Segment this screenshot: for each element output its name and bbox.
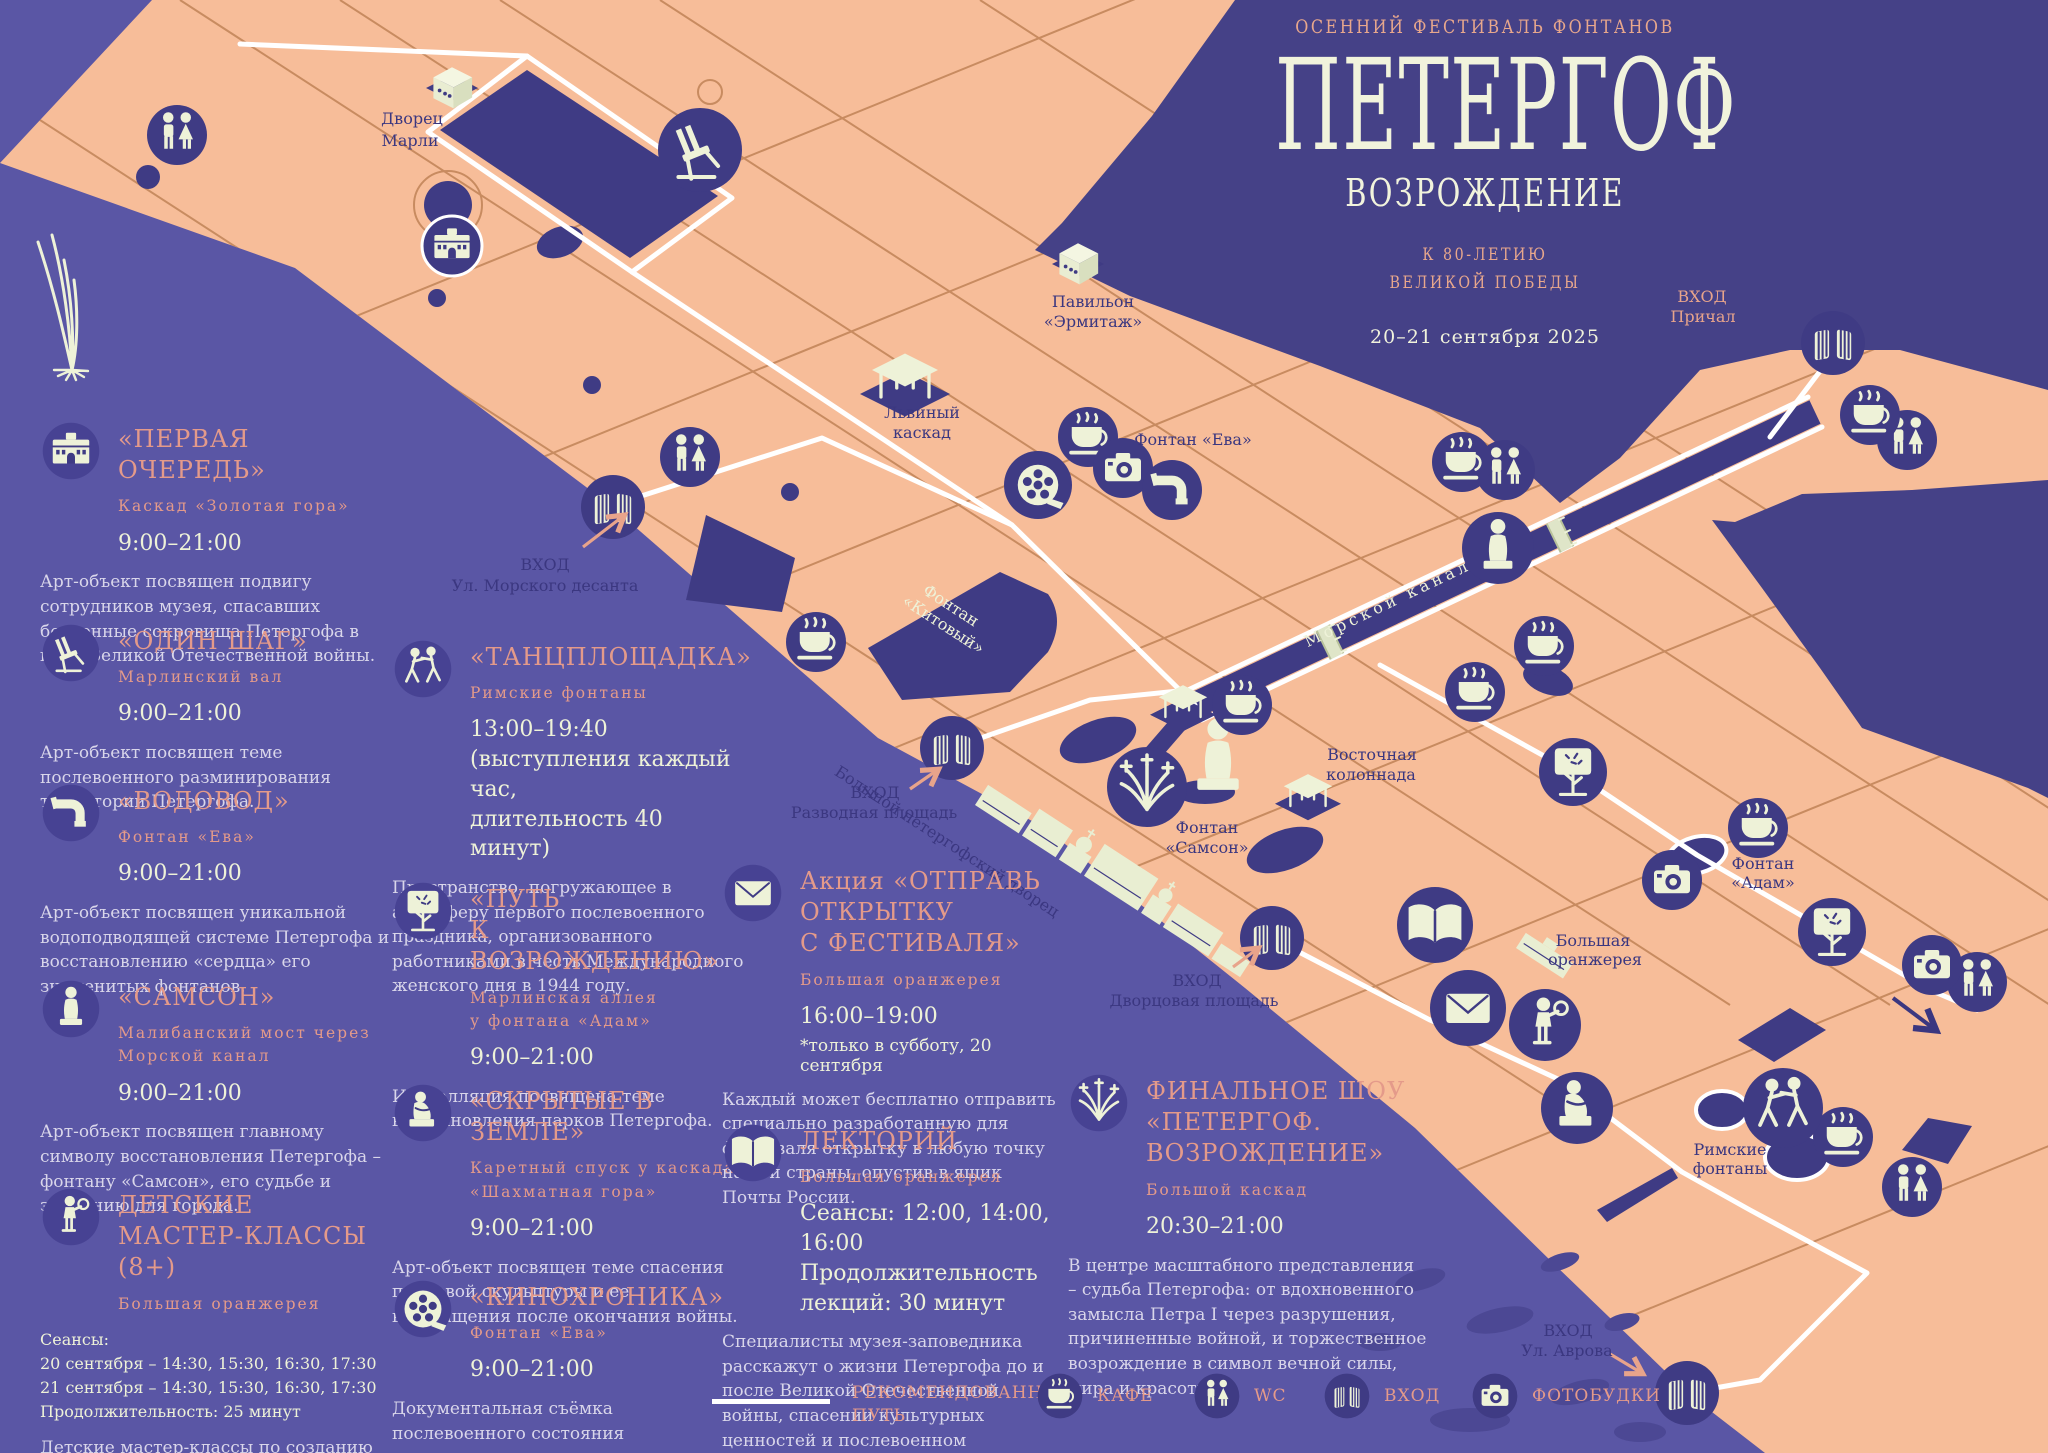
svg-text:Фонтан: Фонтан (1176, 818, 1239, 837)
svg-text:Львиный: Львиный (884, 403, 960, 422)
svg-text:ВХОД: ВХОД (850, 783, 899, 802)
svg-text:Дворцовая площадь: Дворцовая площадь (1110, 991, 1279, 1010)
event-card: ФИНАЛЬНОЕ ШОУ «ПЕТЕРГОФ. ВОЗРОЖДЕНИЕ» Бо… (1068, 1072, 1428, 1401)
event-location: Большая оранжерея (118, 1293, 400, 1316)
event-location: Римские фонтаны (470, 682, 744, 705)
event-note: *только в субботу, 20 сентября (800, 1036, 1058, 1076)
event-card: ДЕТСКИЕ МАСТЕР-КЛАССЫ (8+) Большая оранж… (40, 1186, 400, 1453)
svg-text:«Адам»: «Адам» (1731, 873, 1795, 892)
event-title: «ПЕРВАЯ ОЧЕРЕДЬ» (118, 424, 392, 486)
entrance-gate-icon (1322, 1371, 1372, 1421)
event-description: Документальная съёмка послевоенного сост… (392, 1397, 744, 1453)
svg-text:оранжерея: оранжерея (1548, 950, 1642, 969)
seated-statue-icon (392, 1082, 454, 1144)
svg-text:Фонтан: Фонтан (1732, 854, 1795, 873)
envelope-icon (722, 862, 784, 924)
svg-text:«Самсон»: «Самсон» (1165, 838, 1248, 857)
palace-icon (40, 420, 102, 482)
svg-text:Римские: Римские (1694, 1140, 1767, 1159)
event-title: «ТАНЦПЛОЩАДКА» (470, 642, 744, 673)
svg-text:колоннада: колоннада (1326, 765, 1416, 784)
event-title: Акция «ОТПРАВЬ ОТКРЫТКУ С ФЕСТИВАЛЯ» (800, 866, 1058, 960)
route-line-sample (712, 1399, 830, 1404)
event-location: Малибанский мост через Морской канал (118, 1022, 371, 1069)
event-time: Сеансы: 12:00, 14:00, 16:00 Продолжитель… (800, 1199, 1062, 1318)
festival-map-poster: Дворец Марли Павильон «Эрмитаж» Львиный … (0, 0, 2048, 1453)
event-title: «ОДИН ШАГ» (118, 626, 308, 657)
event-time: 9:00–21:00 (470, 1214, 744, 1244)
legend-wc: WC (1192, 1371, 1286, 1421)
svg-text:Ул. Морского десанта: Ул. Морского десанта (452, 576, 639, 595)
svg-text:Ул. Аврова: Ул. Аврова (1521, 1341, 1613, 1360)
event-title: «КИНОХРОНИКА» (470, 1282, 724, 1313)
film-reel-icon (392, 1278, 454, 1340)
svg-text:Восточная: Восточная (1327, 745, 1417, 764)
svg-text:Большая: Большая (1556, 931, 1631, 950)
dedication: К 80-ЛЕТИЮ ВЕЛИКОЙ ПОБЕДЫ (1191, 241, 1779, 299)
svg-text:Фонтан «Ева»: Фонтан «Ева» (1134, 430, 1252, 449)
svg-text:ВХОД: ВХОД (1172, 971, 1221, 990)
svg-text:ВХОД: ВХОД (520, 555, 569, 574)
photo-booth-icon (1470, 1371, 1520, 1421)
event-title: «ПУТЬ К ВОЗРОЖДЕНИЮ» (470, 884, 744, 978)
legend-wc-label: WC (1254, 1386, 1286, 1406)
event-time: 9:00–21:00 (470, 1043, 744, 1073)
festival-dates: 20–21 сентября 2025 (1135, 326, 1835, 348)
legend-cafe-label: КАФЕ (1097, 1386, 1154, 1406)
svg-text:Дворец: Дворец (381, 109, 443, 128)
event-time: 13:00–19:40 (выступления каждый час, дли… (470, 715, 744, 863)
child-icon (40, 1186, 102, 1248)
event-location: Марлинская аллея у фонтана «Адам» (470, 987, 744, 1034)
event-title: «ВОДОВОД» (118, 786, 290, 817)
envelope-icon (1446, 994, 1490, 1023)
event-description: Детские мастер-классы по созданию фигуро… (40, 1436, 400, 1453)
event-location: Каретный спуск у каскада «Шахматная гора… (470, 1157, 744, 1204)
open-book-icon (722, 1122, 784, 1184)
event-location: Большой каскад (1146, 1179, 1405, 1202)
legend-photobooth-label: ФОТОБУДКИ (1532, 1386, 1661, 1406)
event-title: ДЕТСКИЕ МАСТЕР-КЛАССЫ (8+) (118, 1190, 400, 1284)
svg-text:Разводная площадь: Разводная площадь (791, 803, 958, 822)
poster-title: ПЕТЕРГОФ (1275, 42, 1695, 171)
poster-title-block: ОСЕННИЙ ФЕСТИВАЛЬ ФОНТАНОВ ПЕТЕРГОФ ВОЗР… (1135, 16, 1835, 348)
legend-entrance: ВХОД (1322, 1371, 1440, 1421)
event-title: ЛЕКТОРИЙ (800, 1126, 1062, 1157)
cafe-icon (1035, 1371, 1085, 1421)
svg-text:каскад: каскад (893, 423, 951, 442)
legend-entrance-label: ВХОД (1384, 1386, 1440, 1406)
event-card: «САМСОН» Малибанский мост через Морской … (40, 978, 392, 1219)
pipe-icon (40, 782, 102, 844)
event-location: Большая оранжерея (800, 1166, 1062, 1189)
event-location: Каскад «Золотая гора» (118, 495, 392, 518)
wc-icon (1192, 1371, 1242, 1421)
event-location: Большая оранжерея (800, 969, 1058, 992)
svg-text:Марли: Марли (382, 131, 439, 150)
event-card: «КИНОХРОНИКА» Фонтан «Ева» 9:00–21:00 До… (392, 1278, 744, 1453)
legend-cafe: КАФЕ (1035, 1371, 1154, 1421)
event-time: 20:30–21:00 (1146, 1212, 1405, 1242)
statue-icon (40, 978, 102, 1040)
event-title: «САМСОН» (118, 982, 371, 1013)
event-time: 9:00–21:00 (470, 1355, 724, 1385)
svg-text:фонтаны: фонтаны (1693, 1159, 1768, 1178)
svg-text:ВХОД: ВХОД (1543, 1321, 1592, 1340)
event-time: 9:00–21:00 (118, 529, 392, 559)
legend-photobooth: ФОТОБУДКИ (1470, 1371, 1661, 1421)
fireworks-icon (1068, 1072, 1130, 1134)
event-time: 16:00–19:00 (800, 1002, 1058, 1032)
event-time: 9:00–21:00 (118, 699, 308, 729)
event-location: Фонтан «Ева» (118, 826, 290, 849)
event-card: «ВОДОВОД» Фонтан «Ева» 9:00–21:00 Арт-об… (40, 782, 392, 1000)
event-location: Фонтан «Ева» (470, 1322, 724, 1345)
poster-subtitle: ВОЗРОЖДЕНИЕ (1219, 171, 1751, 215)
event-time: 9:00–21:00 (118, 1079, 371, 1109)
event-location: Марлинский вал (118, 666, 308, 689)
svg-text:«Эрмитаж»: «Эрмитаж» (1044, 312, 1142, 331)
event-schedule: Сеансы: 20 сентября – 14:30, 15:30, 16:3… (40, 1328, 400, 1424)
tree-icon (392, 880, 454, 942)
event-title: «СКРЫТЫЕ В ЗЕМЛЕ» (470, 1086, 744, 1148)
event-title: ФИНАЛЬНОЕ ШОУ «ПЕТЕРГОФ. ВОЗРОЖДЕНИЕ» (1146, 1076, 1405, 1170)
svg-text:Павильон: Павильон (1052, 292, 1134, 311)
dancers-icon (392, 638, 454, 700)
chair-icon (40, 622, 102, 684)
event-time: 9:00–21:00 (118, 859, 290, 889)
